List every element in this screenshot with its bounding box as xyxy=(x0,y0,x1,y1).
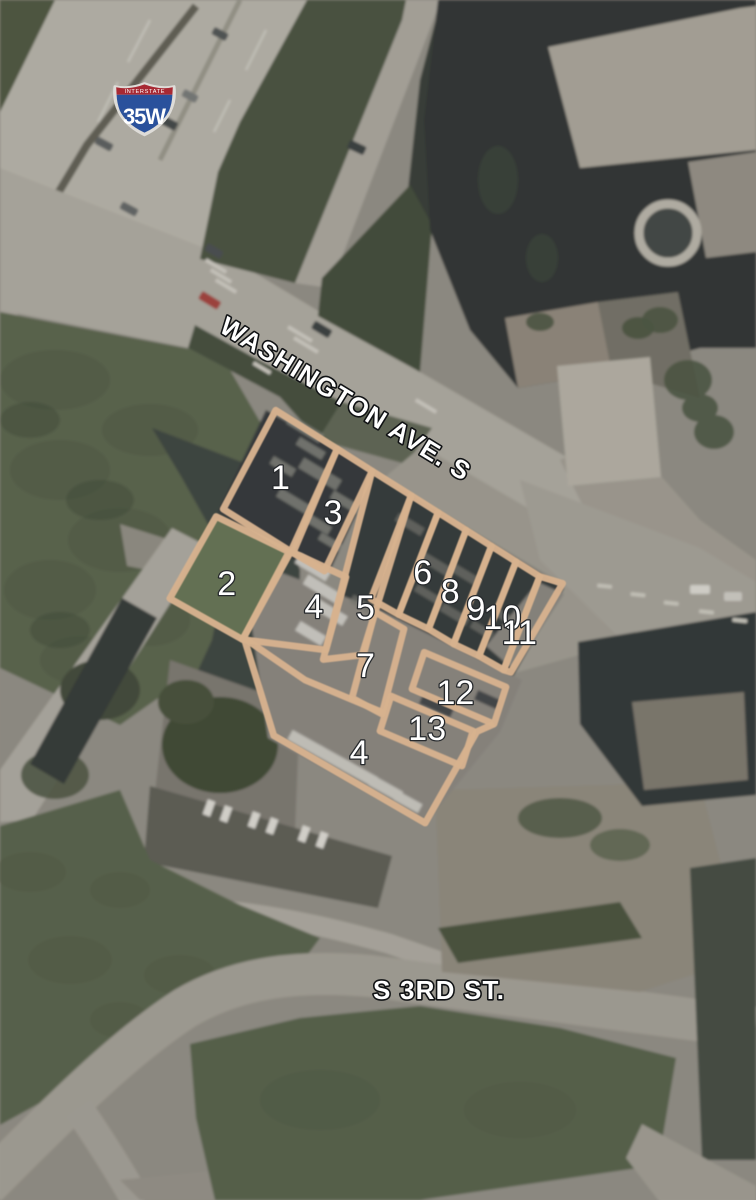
svg-text:12: 12 xyxy=(436,674,474,712)
svg-text:4: 4 xyxy=(350,734,369,772)
svg-text:7: 7 xyxy=(356,647,375,685)
svg-text:INTERSTATE: INTERSTATE xyxy=(125,89,165,95)
svg-text:4: 4 xyxy=(304,588,323,626)
svg-text:S 3RD ST.: S 3RD ST. xyxy=(373,975,505,1005)
svg-text:8: 8 xyxy=(441,573,460,611)
svg-text:35W: 35W xyxy=(123,104,166,129)
svg-text:6: 6 xyxy=(413,554,432,592)
svg-text:3: 3 xyxy=(323,494,342,532)
svg-text:11: 11 xyxy=(502,614,537,652)
svg-text:13: 13 xyxy=(408,710,446,748)
svg-text:2: 2 xyxy=(217,565,236,603)
svg-text:5: 5 xyxy=(356,589,375,627)
svg-text:1: 1 xyxy=(271,459,290,497)
